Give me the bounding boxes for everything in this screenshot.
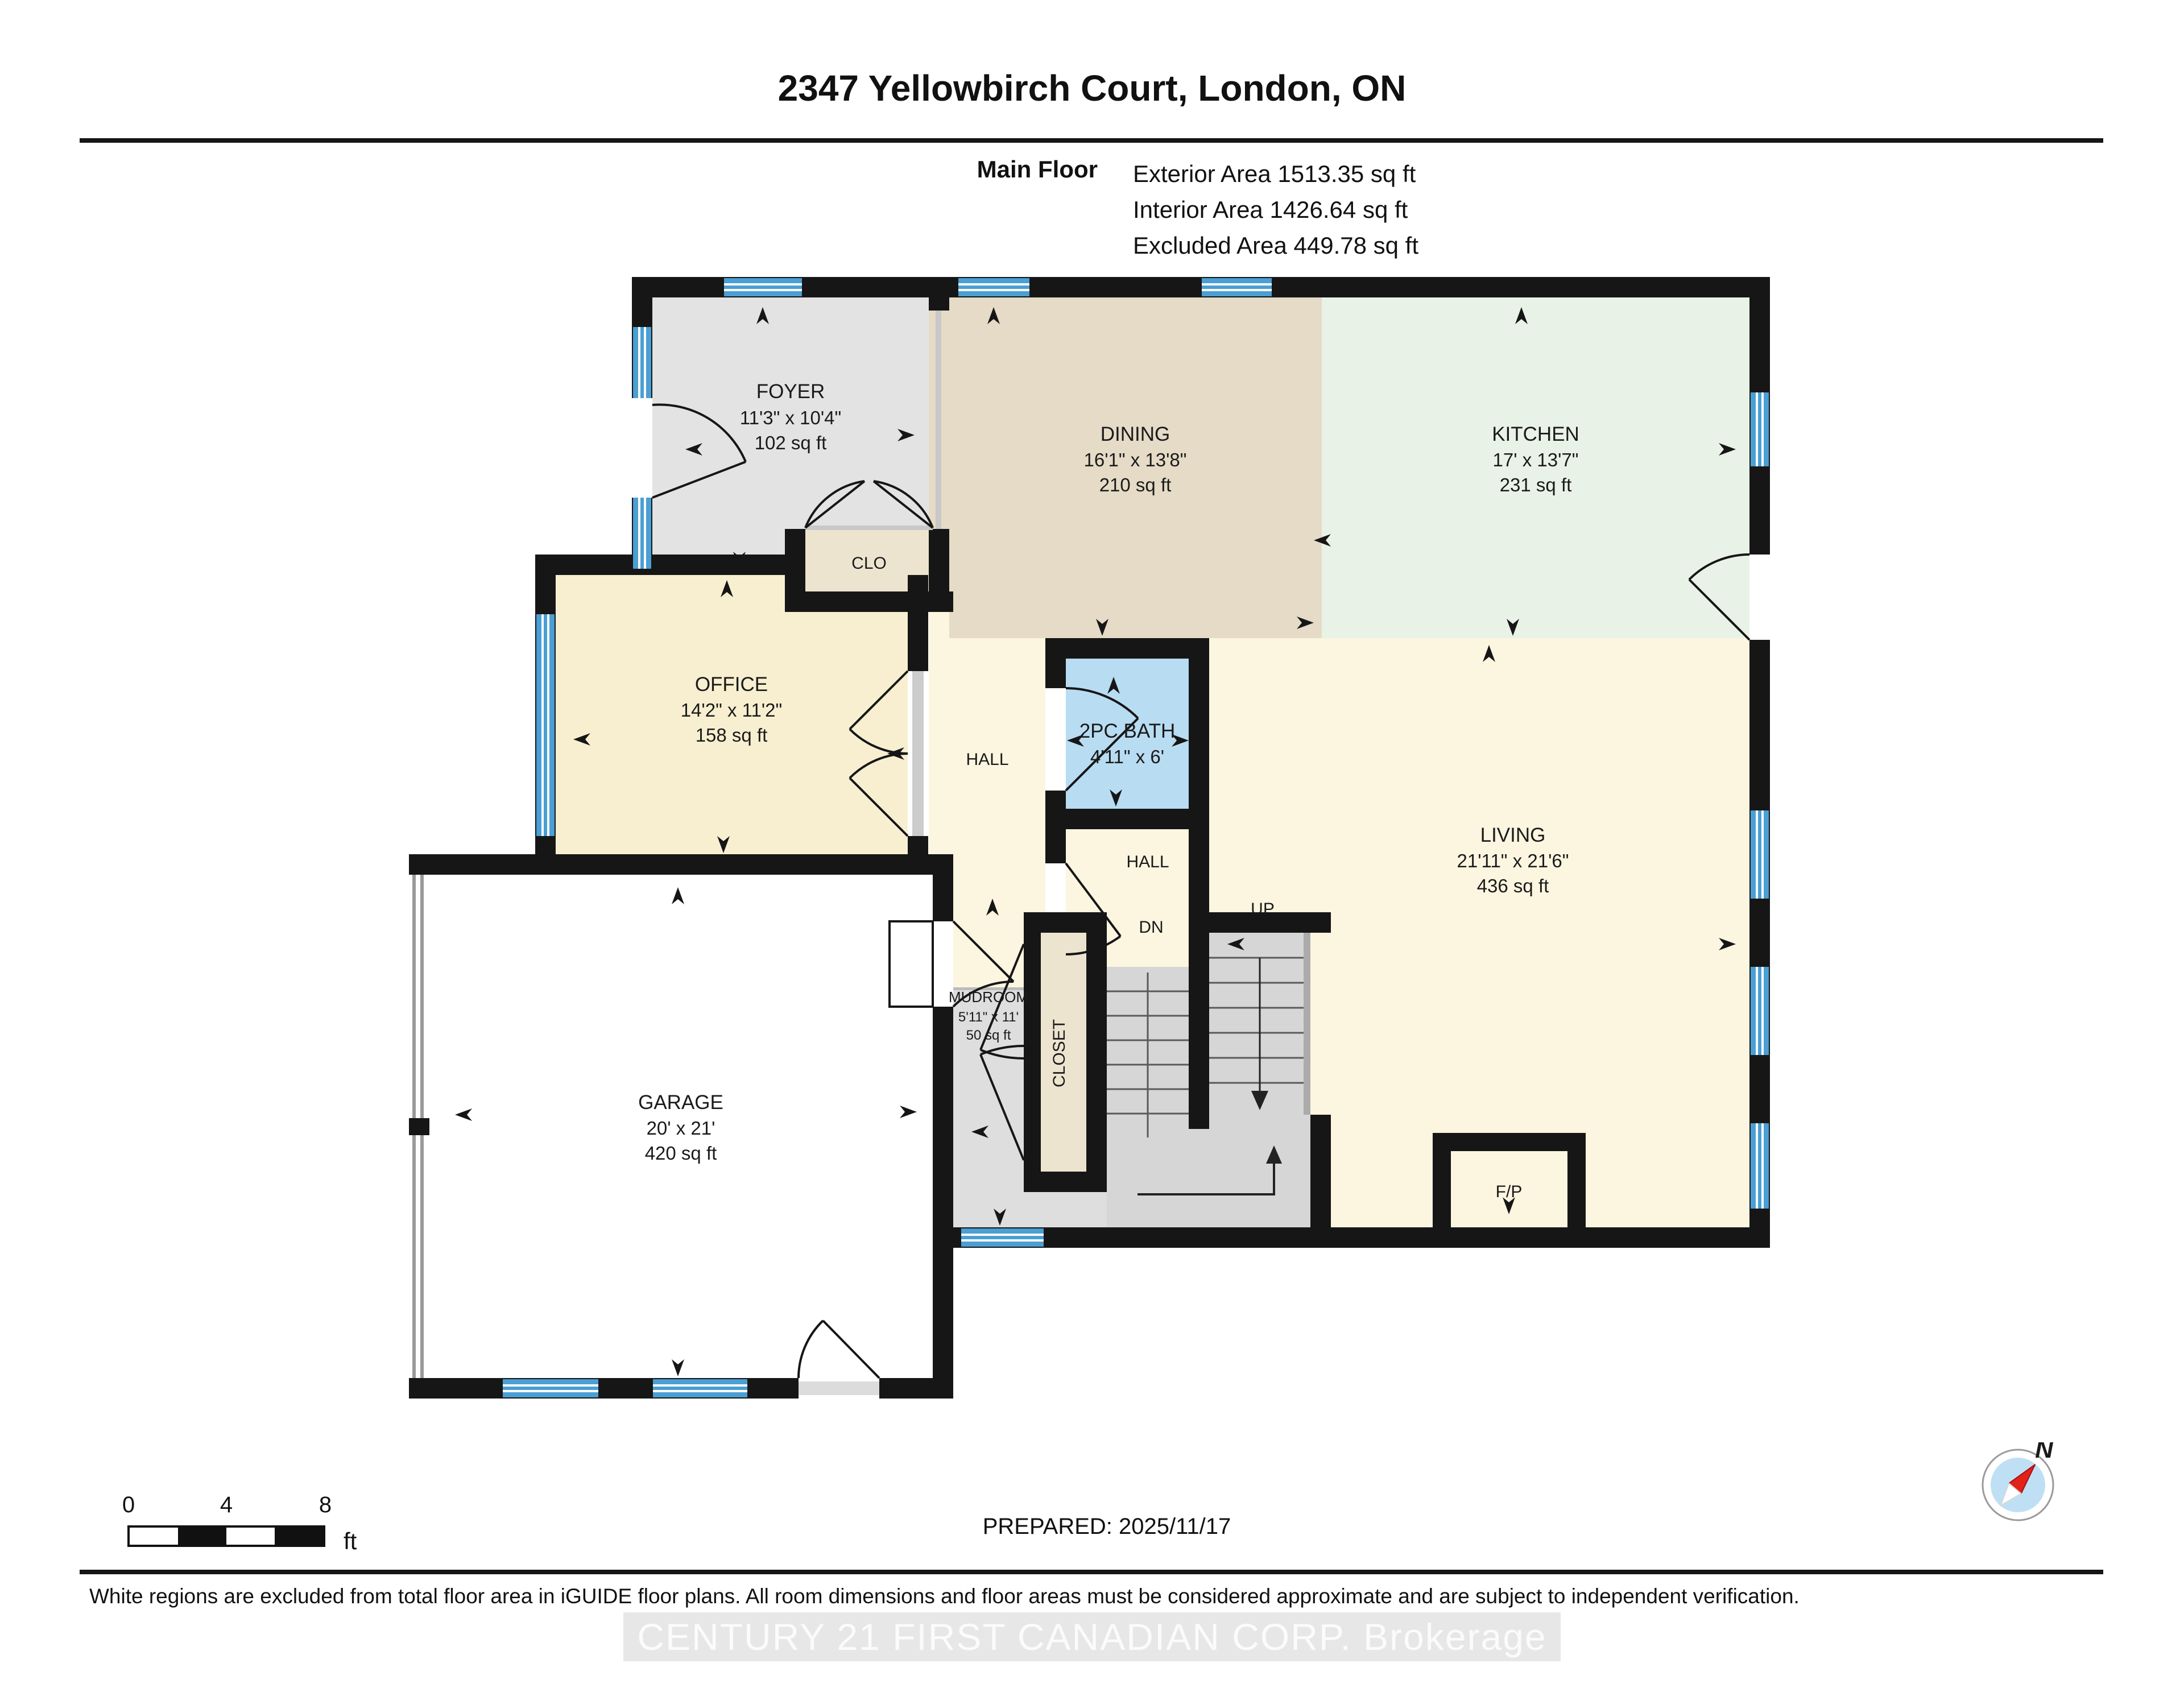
foyer-area: 102 sq ft <box>755 432 827 453</box>
mudroom-dims: 5'11" x 11' <box>958 1010 1019 1025</box>
office-label: OFFICE <box>695 673 768 696</box>
dining-dims: 16'1" x 13'8" <box>1084 449 1187 470</box>
mudroom-label: MUDROOM <box>949 988 1028 1006</box>
garage-area: 420 sq ft <box>645 1143 717 1164</box>
garage-label: GARAGE <box>638 1091 723 1114</box>
floor-plan-page: 2347 Yellowbirch Court, London, ON Main … <box>0 0 2184 1688</box>
foyer-label: FOYER <box>756 380 825 403</box>
fireplace-label: F/P <box>1496 1182 1523 1201</box>
footer-divider <box>80 1570 2103 1574</box>
window-icon <box>1202 278 1272 296</box>
mudroom-area: 50 sq ft <box>966 1028 1011 1043</box>
foyer-dims: 11'3" x 10'4" <box>740 407 842 428</box>
clo-label: CLO <box>851 554 887 573</box>
scale-tick-0: 0 <box>111 1492 146 1518</box>
prepared-date: PREPARED: 2025/11/17 <box>925 1514 1289 1540</box>
scale-bar <box>127 1525 325 1547</box>
scale-tick-4: 4 <box>209 1492 243 1518</box>
dn-label: DN <box>1139 918 1163 937</box>
living-area: 436 sq ft <box>1477 875 1549 896</box>
dining-area: 210 sq ft <box>1099 474 1172 495</box>
brokerage-watermark: CENTURY 21 FIRST CANADIAN CORP. Brokerag… <box>0 1615 2184 1658</box>
bath-dims: 4'11" x 6' <box>1090 746 1164 767</box>
window-icon <box>633 498 651 569</box>
scale-tick-8: 8 <box>308 1492 342 1518</box>
office-dims: 14'2" x 11'2" <box>681 700 783 721</box>
office-area: 158 sq ft <box>696 725 768 746</box>
living-dims: 21'11" x 21'6" <box>1457 850 1569 871</box>
compass-north-label: N <box>2035 1442 2054 1463</box>
up-label: UP <box>1251 900 1275 919</box>
window-icon <box>653 1379 747 1397</box>
bath-label: 2PC BATH <box>1079 720 1176 742</box>
window-icon <box>1751 392 1769 466</box>
window-icon <box>1751 810 1769 899</box>
window-icon <box>633 327 651 398</box>
window-icon <box>536 614 555 836</box>
window-icon <box>724 278 802 296</box>
scale-unit-label: ft <box>344 1528 357 1555</box>
window-icon <box>503 1379 598 1397</box>
kitchen-label: KITCHEN <box>1492 423 1579 445</box>
kitchen-dims: 17' x 13'7" <box>1493 449 1579 470</box>
living-label: LIVING <box>1480 824 1546 846</box>
dining-label: DINING <box>1101 423 1170 445</box>
floor-plan-drawing: FOYER 11'3" x 10'4" 102 sq ft DINING 16'… <box>0 0 2184 1688</box>
disclaimer-text: White regions are excluded from total fl… <box>89 1584 1800 1608</box>
window-icon <box>1751 1123 1769 1209</box>
window-icon <box>958 278 1029 296</box>
compass-icon: N <box>1975 1442 2061 1528</box>
window-icon <box>1751 967 1769 1055</box>
closet-label: CLOSET <box>1050 1019 1069 1087</box>
window-icon <box>961 1228 1044 1247</box>
hall-lower-label: HALL <box>1126 853 1169 871</box>
kitchen-area: 231 sq ft <box>1500 474 1572 495</box>
garage-dims: 20' x 21' <box>647 1118 715 1139</box>
hall-upper-label: HALL <box>966 750 1008 769</box>
